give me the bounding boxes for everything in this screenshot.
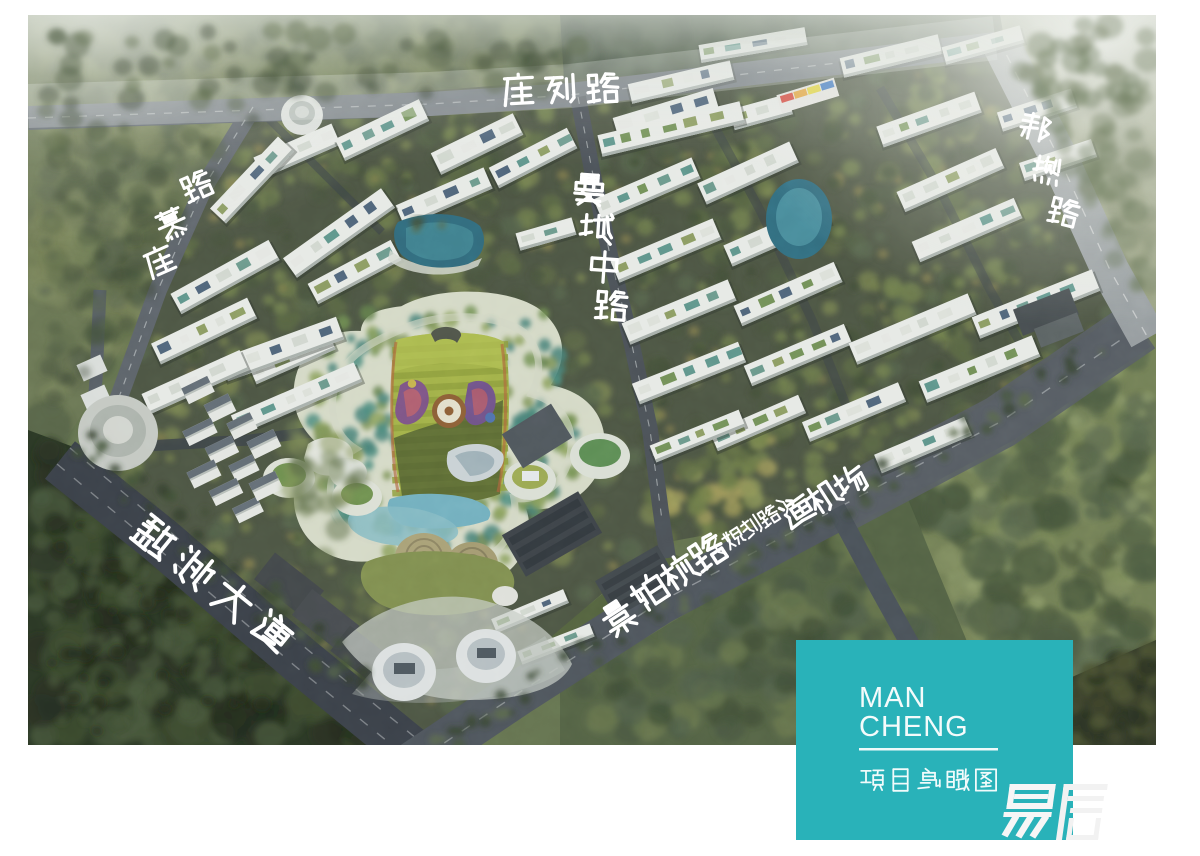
svg-text:MAN: MAN <box>859 682 926 714</box>
svg-text:CHENG: CHENG <box>859 711 969 743</box>
